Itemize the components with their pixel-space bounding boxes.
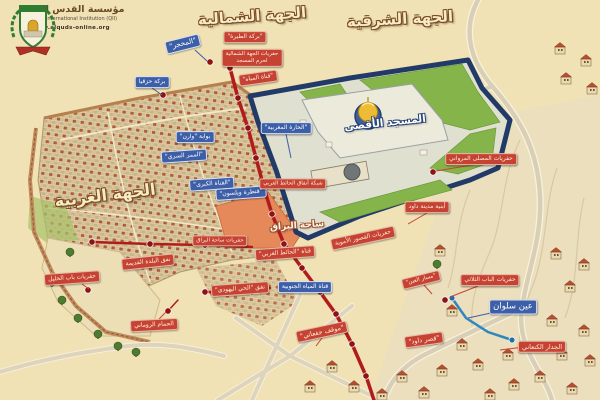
warren-gate-label: بوابة "وارن" xyxy=(176,131,215,143)
org-logo: مؤسسة القدس الدولية al-Quds Internationa… xyxy=(6,3,136,31)
hezekiah-pool-label: بركة حزقيا xyxy=(135,76,170,88)
tira-pool-label: "بركة الطيرة" xyxy=(223,31,266,43)
canaanite-wall-label: الجدار الكنعاني xyxy=(518,341,566,353)
qibli-dome xyxy=(344,164,360,180)
marwani-prayer-hall-label: حفريات المصلى المرواني xyxy=(445,153,517,165)
david-city-buildings-label: أبنية مدينة داود xyxy=(405,201,450,213)
western-wall-tunnels-label: شبكة أنفاق الحائط الغربي xyxy=(259,178,326,189)
silwan-spring-label: عين سلوان xyxy=(489,299,537,314)
south-water-channel-label: قناة المياه الجنوبية xyxy=(278,281,332,293)
jerusalem-old-city-map: الجهة الشماليةالجهة الشرقيةالجهة الغربية… xyxy=(0,0,600,400)
north-excavations-label: حفريات الجهة الشمالية لحرم المسجد xyxy=(222,49,283,67)
triple-gate-excavations-label: حفريات الباب الثلاثي xyxy=(460,274,519,286)
roman-bath-label: الحمام الروماني xyxy=(130,318,178,332)
mughrabi-quarter-label: "الحارة المغربية" xyxy=(261,122,312,134)
buraq-plaza-excavations-label: حفريات ساحة البراق xyxy=(192,235,247,246)
org-emblem-icon xyxy=(6,3,60,59)
